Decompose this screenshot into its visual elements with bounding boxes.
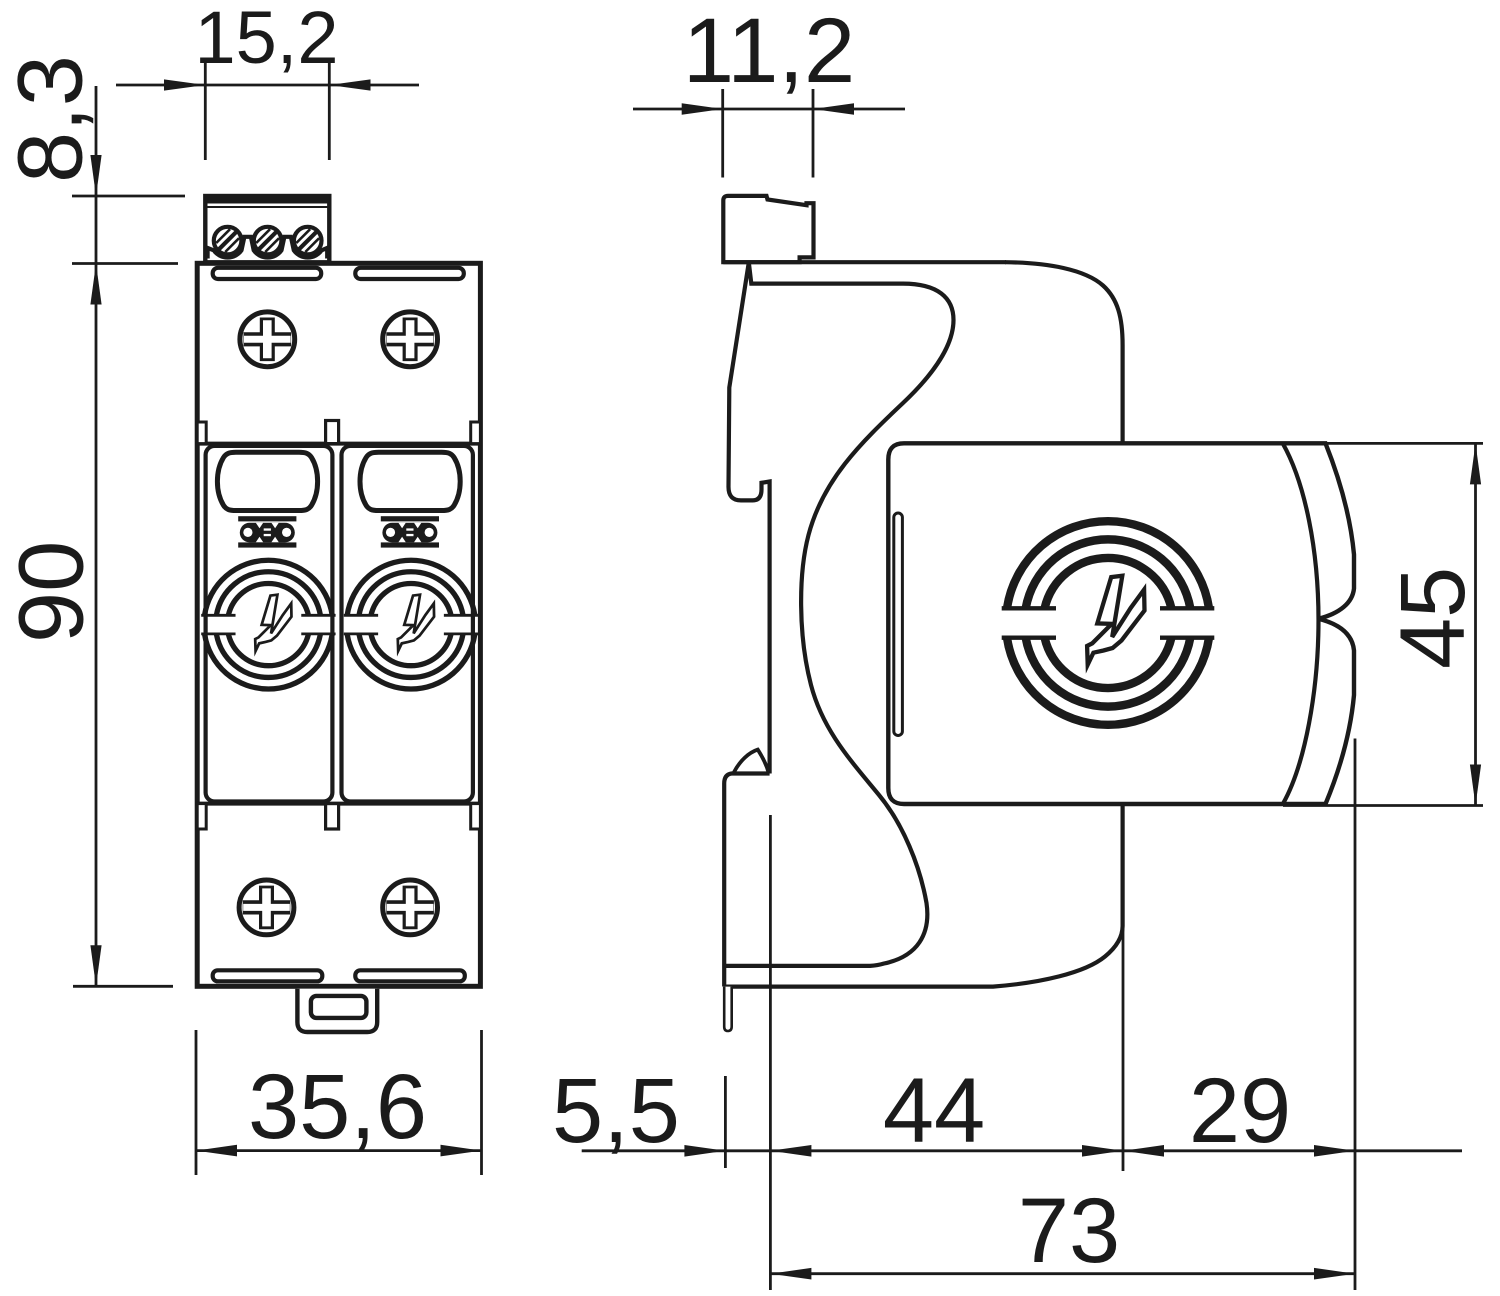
svg-text:90: 90 (1, 541, 103, 643)
svg-text:29: 29 (1189, 1060, 1291, 1162)
svg-text:15,2: 15,2 (194, 0, 338, 79)
svg-text:45: 45 (1382, 567, 1484, 669)
svg-text:11,2: 11,2 (683, 0, 855, 102)
svg-text:8,3: 8,3 (0, 55, 102, 183)
svg-text:73: 73 (1018, 1180, 1120, 1282)
svg-text:35,6: 35,6 (248, 1056, 427, 1158)
svg-text:5,5: 5,5 (552, 1060, 680, 1162)
svg-text:44: 44 (883, 1060, 985, 1162)
